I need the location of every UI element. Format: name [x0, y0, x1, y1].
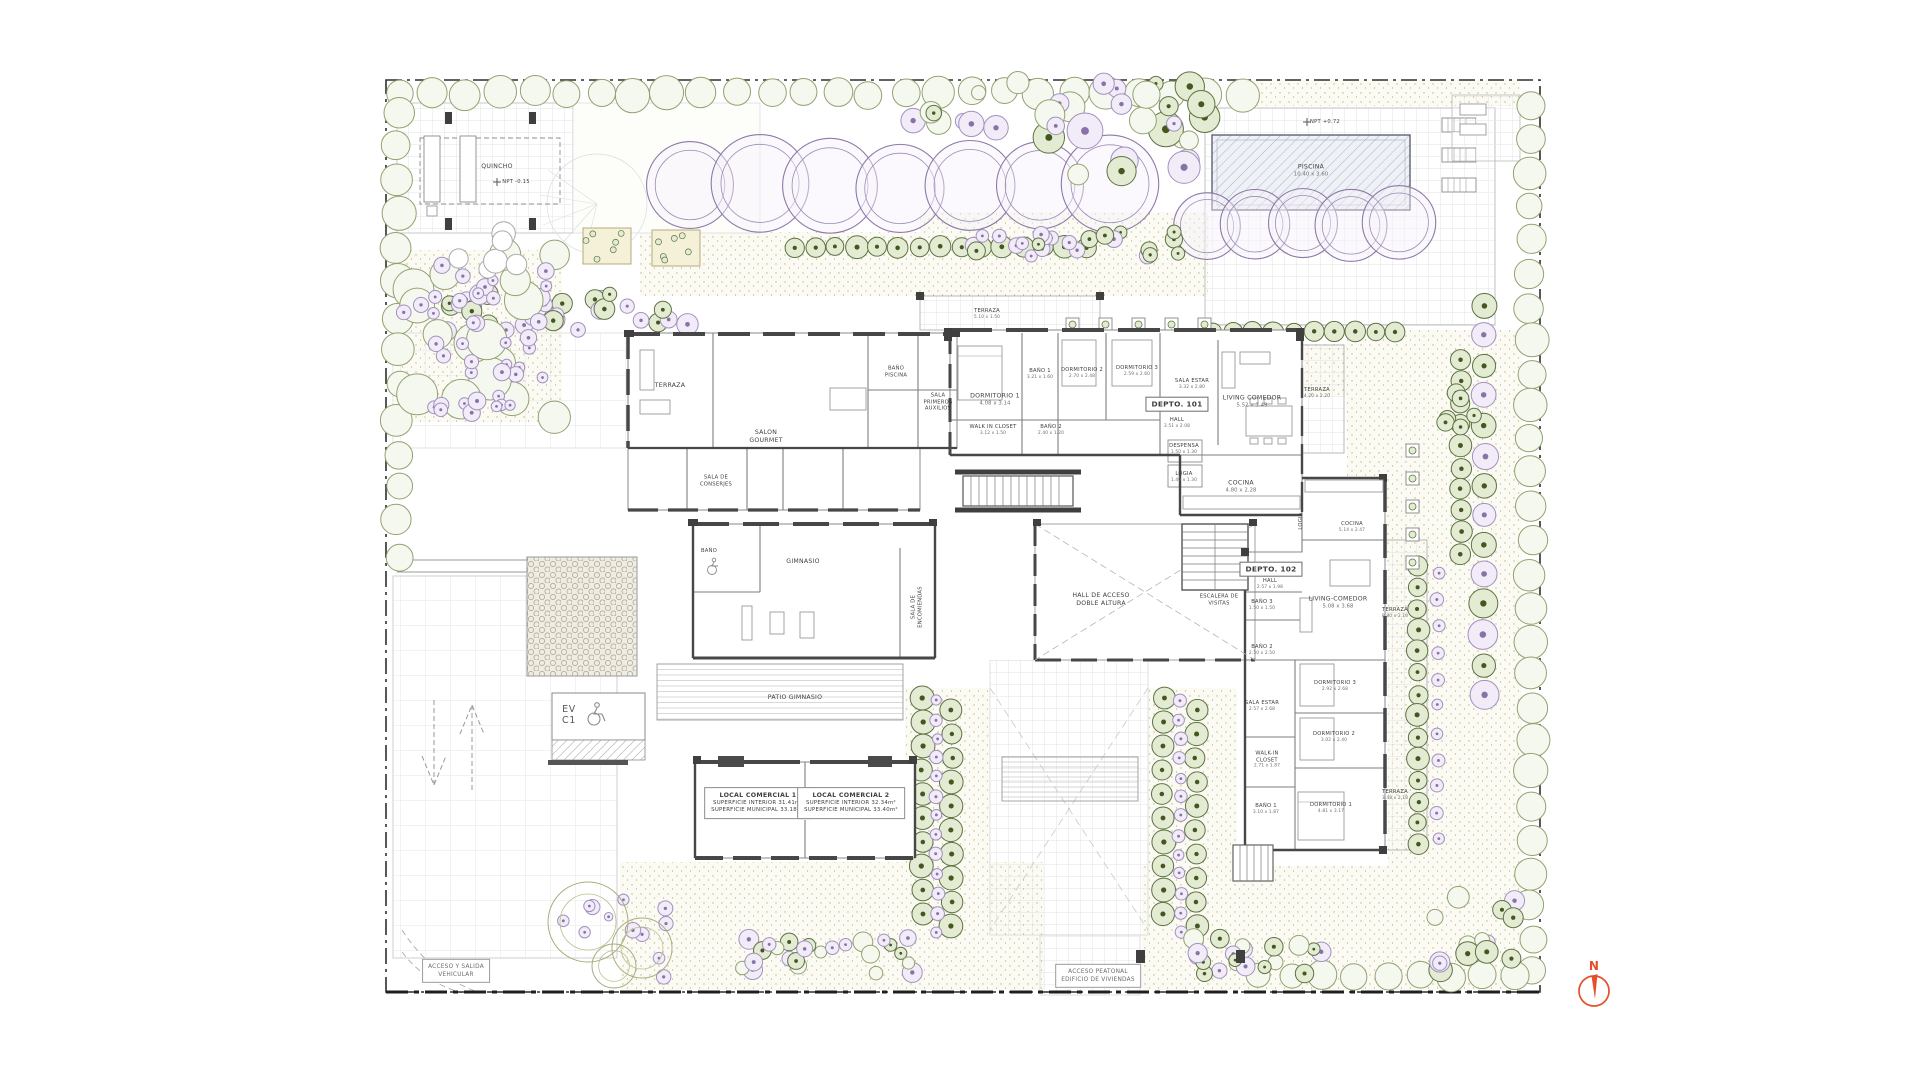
- quincho-table: [424, 136, 440, 202]
- site-plan: QUINCHONPT -0.15PISCINA10.40 x 3.60NPT +…: [0, 0, 1920, 1080]
- shop-door-2: [868, 756, 892, 767]
- shop-door-1: [718, 756, 744, 767]
- floor-plan-drawing: [0, 0, 1920, 1080]
- quincho-deck: [397, 103, 573, 233]
- cobble-bed: [527, 557, 637, 676]
- entry-walkway: [1040, 935, 1140, 995]
- ev-stall: [548, 740, 645, 765]
- north-arrow: [1579, 974, 1609, 1006]
- courtyard-patio: [990, 660, 1148, 935]
